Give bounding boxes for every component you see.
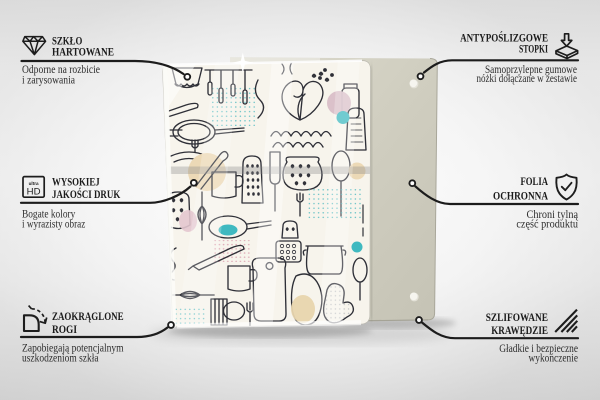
svg-text:i wyrazisty obraz: i wyrazisty obraz	[22, 218, 85, 230]
svg-text:część produktu: część produktu	[516, 219, 578, 231]
svg-text:HD: HD	[27, 187, 41, 198]
svg-text:STOPKI: STOPKI	[519, 42, 548, 55]
svg-text:WYSOKIEJ: WYSOKIEJ	[52, 176, 100, 189]
svg-text:KRAWĘDZIE: KRAWĘDZIE	[491, 324, 548, 337]
svg-text:HARTOWANE: HARTOWANE	[52, 46, 114, 59]
svg-text:uszkodzeniom szkła: uszkodzeniom szkła	[22, 353, 99, 365]
svg-text:i zarysowania: i zarysowania	[22, 74, 75, 86]
svg-text:ultra: ultra	[29, 181, 39, 186]
svg-text:ZAOKRĄGLONE: ZAOKRĄGLONE	[52, 310, 124, 323]
svg-text:ROGI: ROGI	[52, 323, 77, 336]
svg-text:OCHRONNA: OCHRONNA	[493, 190, 548, 203]
svg-text:nóżki dołączane w zestawie: nóżki dołączane w zestawie	[477, 73, 578, 85]
svg-text:JAKOŚCI DRUK: JAKOŚCI DRUK	[52, 187, 120, 201]
svg-text:wykończenie: wykończenie	[529, 352, 579, 364]
svg-text:SZLIFOWANE: SZLIFOWANE	[486, 311, 549, 324]
svg-text:FOLIA: FOLIA	[521, 175, 549, 188]
